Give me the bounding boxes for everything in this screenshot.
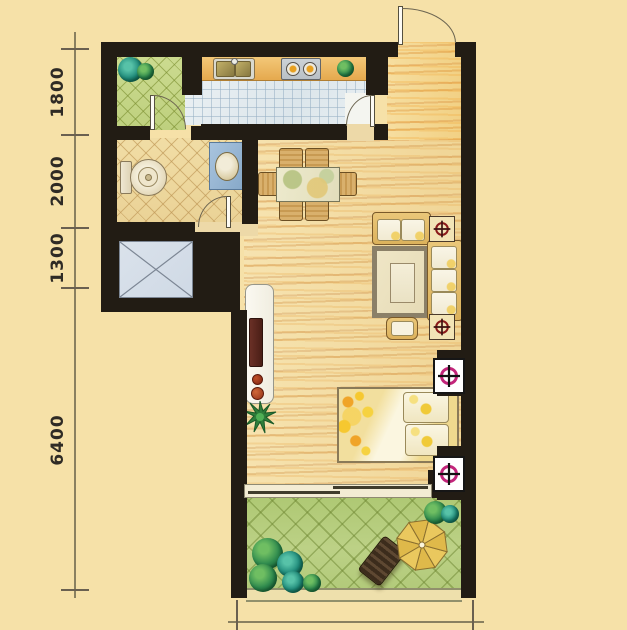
wall-left-lower [231, 310, 247, 598]
wall-kitchen-right [366, 42, 388, 95]
wash-basin [215, 152, 239, 181]
ac-marker-icon [433, 456, 465, 492]
dimension-label-1300: 1300 [48, 223, 68, 293]
ottoman [386, 317, 418, 340]
tv-screen [249, 318, 263, 367]
wall-balcony-kitchen-divider [182, 55, 202, 95]
kitchen-stove [281, 58, 321, 80]
kitchen-sink [213, 58, 255, 80]
ottoman-cushion [391, 321, 414, 336]
wall-kitchen-bottom-b [374, 124, 388, 140]
stove-burner-right [303, 62, 317, 76]
kitchen-floor [185, 80, 368, 125]
wall-left-upper [101, 42, 117, 312]
ac-marker-icon [429, 314, 455, 340]
dimension-label-6400: 6400 [48, 405, 68, 475]
dimension-tick [61, 589, 89, 591]
wall-bathroom-right [242, 138, 258, 224]
pillow-top [403, 392, 449, 423]
wall-right [461, 42, 476, 598]
entry-door-swing [402, 8, 456, 43]
sofa-cushion-2 [431, 269, 457, 292]
service-balcony-plant-2 [137, 63, 154, 80]
dining-chair-bottom-left [279, 199, 303, 221]
balcony-plant-left-5 [303, 574, 321, 592]
light-well-shaft [119, 241, 193, 298]
floor-plant [243, 400, 277, 434]
floor-plan: 1800 2000 1300 6400 [0, 0, 627, 630]
dimension-label-1800: 1800 [48, 57, 68, 127]
decor-bowl-small [252, 374, 263, 385]
counter-plant [337, 60, 354, 77]
dimension-tick [61, 134, 89, 136]
loveseat-cushion-right [401, 219, 425, 241]
ac-marker-icon [433, 358, 465, 394]
shaft-cross-lines [120, 242, 192, 297]
entry-hall-floor [387, 42, 463, 142]
dimension-tick [236, 600, 238, 630]
dimension-label-2000: 2000 [48, 146, 68, 216]
dimension-tick [472, 600, 474, 630]
dimension-line-left [74, 32, 76, 598]
sliding-door-panel-left [248, 491, 340, 494]
wall-kitchen-bottom-a [201, 124, 347, 140]
wall-bathroom-top-a [101, 126, 150, 140]
bed-blanket [339, 389, 403, 461]
toilet-flush [145, 174, 152, 181]
sliding-door-panel-right [333, 486, 428, 489]
wall-bathroom-bottom [101, 222, 195, 236]
balcony-railing [246, 588, 462, 602]
loveseat [372, 212, 431, 245]
dimension-tick [61, 48, 89, 50]
sofa-cushion-3 [431, 292, 457, 315]
balcony-plant-right-2 [441, 505, 459, 523]
sink-faucet [231, 58, 238, 65]
coffee-table [390, 263, 415, 303]
dining-chair-bottom-right [305, 199, 329, 221]
dimension-line-bottom [228, 621, 484, 623]
balcony-plant-left-4 [282, 571, 304, 593]
decor-bowl-large [251, 387, 264, 400]
wall-top [101, 42, 398, 57]
stove-burner-left [286, 62, 300, 76]
loveseat-cushion-left [377, 219, 401, 241]
sofa [427, 240, 463, 321]
sofa-cushion-1 [431, 246, 457, 269]
ac-marker-icon [429, 216, 455, 242]
dining-table [276, 167, 340, 202]
balcony-plant-left-3 [249, 564, 277, 592]
